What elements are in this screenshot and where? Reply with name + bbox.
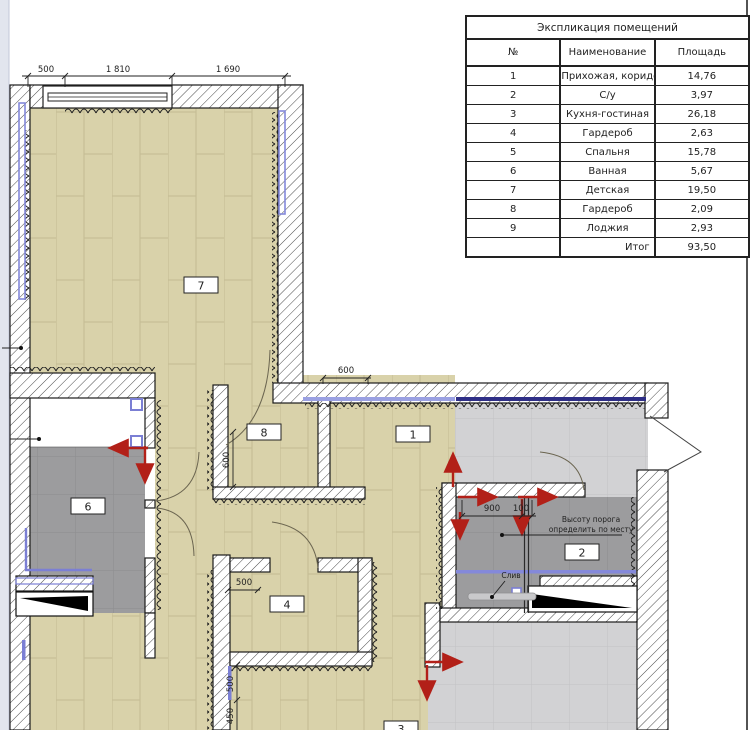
table-row: 9 Лоджия 2,93 xyxy=(466,219,749,238)
col-header-name: Наименование xyxy=(560,39,654,66)
table-row: 2 С/у 3,97 xyxy=(466,86,749,105)
table-row: 8 Гардероб 2,09 xyxy=(466,200,749,219)
total-value: 93,50 xyxy=(655,238,749,258)
room-label-7: 7 xyxy=(184,277,218,293)
room-label-6: 6 xyxy=(71,498,105,514)
svg-text:3: 3 xyxy=(398,723,405,730)
dim-top-1810: 1 810 xyxy=(106,65,130,75)
drawing-sheet: 500 1 810 1 690 600 600 900 100 500 500 … xyxy=(0,0,753,730)
dim-ward4-500: 500 xyxy=(236,578,252,588)
svg-text:8: 8 xyxy=(261,427,268,440)
svg-text:1: 1 xyxy=(410,429,417,442)
dim-top-500: 500 xyxy=(38,65,54,75)
dim-wc-900: 900 xyxy=(484,504,500,514)
note-threshold-1: Высоту порога xyxy=(562,515,620,524)
svg-text:4: 4 xyxy=(284,599,291,612)
table-row: 1 Прихожая, коридор 14,76 xyxy=(466,66,749,86)
note-drain: Слив xyxy=(501,571,520,580)
entrance-door xyxy=(650,416,701,472)
dim-wc-100: 100 xyxy=(513,504,529,514)
svg-text:6: 6 xyxy=(85,501,92,514)
table-row: 4 Гардероб 2,63 xyxy=(466,124,749,143)
table-row: 6 Ванная 5,67 xyxy=(466,162,749,181)
table-title: Экспликация помещений xyxy=(466,16,749,39)
table-total-row: Итог 93,50 xyxy=(466,238,749,258)
dim-low-450: 450 xyxy=(226,708,236,724)
col-header-area: Площадь xyxy=(655,39,749,66)
note-threshold-2: определить по месту xyxy=(549,525,634,534)
dim-low-500: 500 xyxy=(226,676,236,692)
svg-text:2: 2 xyxy=(579,547,586,560)
room-label-1: 1 xyxy=(396,426,430,442)
dim-top-1690: 1 690 xyxy=(216,65,240,75)
drain-channel xyxy=(468,593,536,600)
col-header-num: № xyxy=(466,39,560,66)
table-row: 7 Детская 19,50 xyxy=(466,181,749,200)
room-label-4: 4 xyxy=(270,596,304,612)
table-row: 5 Спальня 15,78 xyxy=(466,143,749,162)
dim-hall-600: 600 xyxy=(338,366,354,376)
svg-text:7: 7 xyxy=(198,280,205,293)
table-row: 3 Кухня-гостиная 26,18 xyxy=(466,105,749,124)
room-label-8: 8 xyxy=(247,424,281,440)
total-label: Итог xyxy=(560,238,654,258)
explication-table: Экспликация помещений № Наименование Пло… xyxy=(465,15,750,258)
room-label-3: 3 xyxy=(384,721,418,730)
dim-ward8-600: 600 xyxy=(222,452,232,468)
room-label-2: 2 xyxy=(565,544,599,560)
